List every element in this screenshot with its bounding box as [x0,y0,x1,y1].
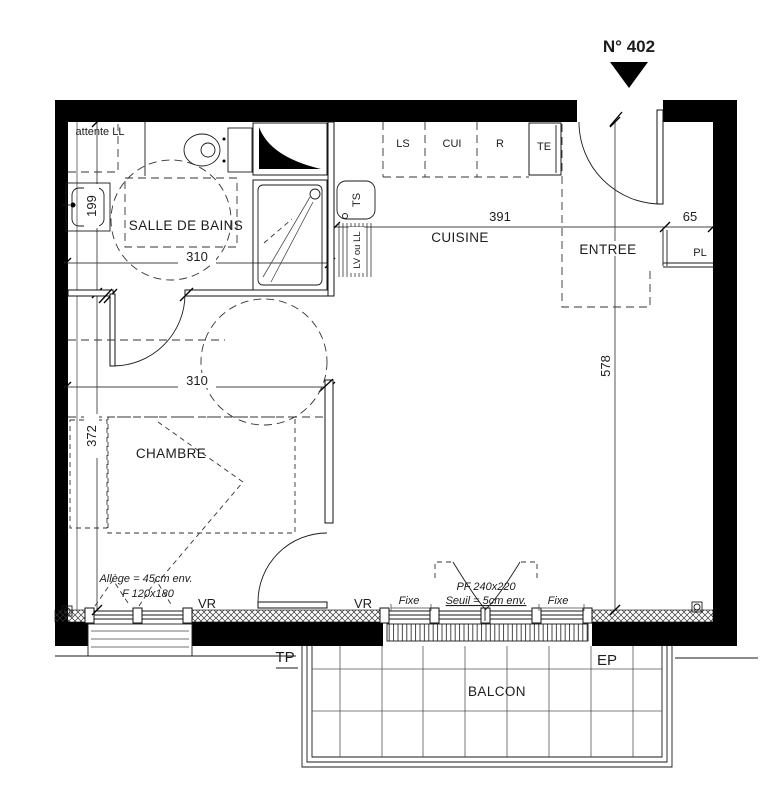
svg-text:310: 310 [186,373,208,388]
entry-label-group: ENTREE [572,241,644,257]
svg-text:372: 372 [84,425,99,447]
fixe-right-label: Fixe [548,595,569,607]
ep-label: EP [597,652,617,669]
kitchen-cui-label: CUI [443,138,462,150]
kitchen-te-unit: TE [529,123,561,175]
bathroom-label: SALLE DE BAINS [129,218,243,233]
pf-label: PF 240x220 [456,581,516,593]
kitchen-ls-label: LS [396,138,409,150]
seuil-label: Seuil = 5cm env. [446,595,527,607]
hall-and-bedroom-zone [68,299,327,582]
svg-text:578: 578 [598,355,613,377]
vr-left-label: VR [198,596,216,611]
dim-right-side: 578 [598,344,613,388]
kitchen-counter: LS CUI R [383,122,529,177]
kitchen-lv-space: LV ou LL [339,223,371,277]
balcony: BALCON EP TP [275,646,672,767]
dim-bathroom-width: 310 [178,249,216,264]
balcony-label: BALCON [468,684,526,699]
dim-bedroom-side: 372 [84,414,99,458]
dim-closet-depth: 65 [683,209,697,224]
entry-door [579,110,663,204]
bedroom-door [258,533,327,608]
entry-label: ENTREE [579,242,636,257]
tp-label: TP [275,649,294,666]
dimension-lines [61,117,718,615]
toilet [184,128,252,172]
kitchen-te-label: TE [537,141,551,153]
bathroom-door [110,294,185,366]
vr-right-label: VR [354,596,372,611]
kitchen-lv-label: LV ou LL [352,231,363,268]
shower [253,180,327,290]
window-f-annotations: Allège = 45cm env. F 120x180 VR [98,573,216,611]
unit-marker-triangle-icon [610,62,648,88]
technical-duct [253,123,327,175]
dim-hall-width: 310 [178,373,216,388]
window-pf-annotations: VR Fixe Fixe PF 240x220 Seuil = 5cm env. [354,581,568,611]
svg-text:310: 310 [186,249,208,264]
dim-bathroom-side: 199 [84,184,99,228]
floor-plan: N° 402 [0,0,774,800]
floor-plan-page: N° 402 [0,0,774,800]
kitchen-label: CUISINE [431,230,489,245]
closet-pl: PL [663,230,713,267]
allege-label: Allège = 45cm env. [98,573,192,585]
kitchen-ts-sink: TS [337,181,375,219]
attente-ll-label: attente LL [76,126,125,138]
kitchen-ts-label: TS [351,193,363,207]
unit-header: N° 402 [603,37,655,88]
bedroom-label: CHAMBRE [136,446,206,461]
unit-number-label: N° 402 [603,37,655,56]
fixe-left-label: Fixe [399,595,420,607]
svg-text:199: 199 [84,195,99,217]
exterior-walls [55,100,737,646]
closet-pl-label: PL [693,247,706,259]
dim-kitchen-width: 391 [489,209,511,224]
kitchen-r-label: R [496,138,504,150]
window-f-label: F 120x180 [122,588,175,600]
